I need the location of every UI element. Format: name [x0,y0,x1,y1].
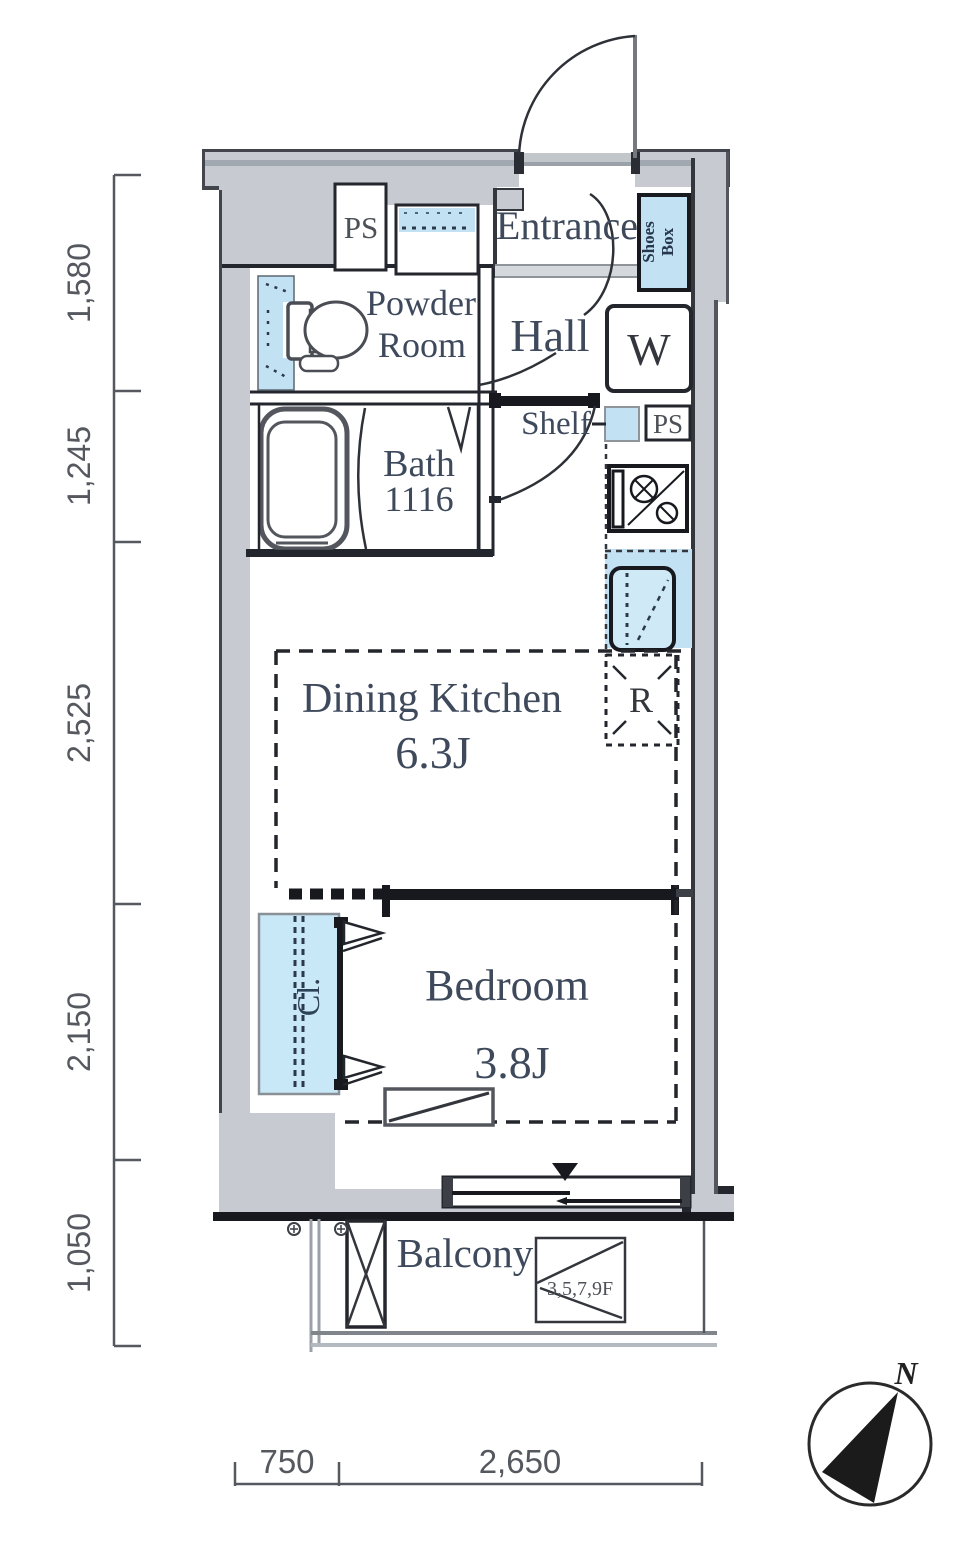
svg-text:PS: PS [344,210,378,245]
svg-text:3.8J: 3.8J [474,1037,549,1088]
svg-text:Hall: Hall [510,310,589,361]
svg-text:Bedroom: Bedroom [425,961,589,1010]
svg-text:Room: Room [378,325,466,365]
svg-text:1,245: 1,245 [61,426,97,506]
svg-text:2,525: 2,525 [61,683,97,763]
svg-text:W: W [627,324,671,375]
svg-text:N: N [893,1355,919,1391]
svg-text:6.3J: 6.3J [395,727,470,778]
svg-text:1,580: 1,580 [61,243,97,323]
svg-text:Powder: Powder [366,283,476,323]
svg-text:750: 750 [259,1443,314,1480]
svg-text:2,650: 2,650 [479,1443,562,1480]
svg-text:Dining Kitchen: Dining Kitchen [302,676,562,722]
svg-text:R: R [629,680,653,720]
svg-text:Cl.: Cl. [290,978,326,1016]
svg-text:Box: Box [658,227,677,256]
svg-text:Shelf: Shelf [521,406,591,442]
svg-text:Entrance: Entrance [496,203,638,248]
svg-text:1,050: 1,050 [61,1213,97,1293]
svg-text:Balcony: Balcony [397,1230,534,1276]
svg-text:PS: PS [653,409,683,439]
svg-text:3,5,7,9F: 3,5,7,9F [547,1278,613,1300]
svg-text:Shoes: Shoes [639,221,658,263]
svg-text:2,150: 2,150 [61,992,97,1072]
svg-text:1116: 1116 [384,479,453,519]
